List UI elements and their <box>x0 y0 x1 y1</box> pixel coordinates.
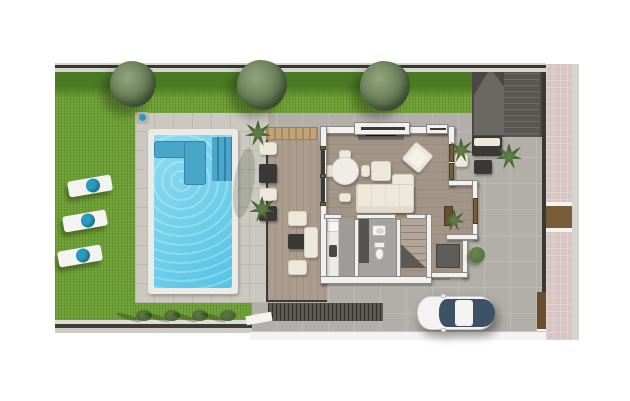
slatted-retaining-wall <box>268 303 383 321</box>
lawn-left <box>55 72 135 320</box>
wall-bottom <box>320 276 432 284</box>
parked-car <box>417 296 495 330</box>
door-post <box>320 146 326 150</box>
tree-canopy <box>360 61 410 111</box>
wall-stairs-entry <box>426 214 432 278</box>
dining-chair <box>339 193 351 202</box>
round-bush <box>469 247 485 263</box>
toilet-bowl <box>375 248 384 260</box>
wall-bath-stairs <box>396 219 401 277</box>
sidewalk-curb <box>572 64 579 340</box>
external-staircase <box>504 68 540 137</box>
patio-coffee-table <box>474 160 492 174</box>
door-post <box>320 202 326 206</box>
terrace-lounge-chair <box>288 260 307 275</box>
patio-cube-seat <box>455 154 468 167</box>
window-bump <box>473 198 478 224</box>
terrace-stone-wall <box>266 127 318 140</box>
door-post <box>320 174 326 178</box>
car-mirror <box>441 328 446 332</box>
shower-vanity-strip <box>359 219 369 263</box>
window-glass <box>361 127 405 130</box>
outdoor-shower <box>136 112 149 124</box>
driveway-curb <box>250 331 546 340</box>
window-right <box>449 163 454 180</box>
pool-entry-steps <box>212 137 232 181</box>
patio-sofa <box>472 136 502 156</box>
window-right <box>449 144 454 162</box>
car-roof <box>455 300 473 326</box>
car-mirror <box>441 294 446 298</box>
window-bay-top <box>354 122 410 135</box>
terrace-table <box>259 164 277 183</box>
shower-head <box>139 114 146 121</box>
pool-corner-bench-leg <box>184 141 206 185</box>
round-dining-table <box>331 157 359 185</box>
pedestrian-gate <box>546 202 572 232</box>
gate-post <box>537 292 546 334</box>
terrace-lounge-chair <box>288 211 307 226</box>
coffee-table <box>371 161 391 181</box>
terrace-coffee-table <box>288 234 305 249</box>
lounger-cushion <box>85 177 101 193</box>
armchair-seat <box>408 148 428 168</box>
wall-entry-bottom <box>428 272 468 278</box>
kitchen-sink <box>329 245 337 257</box>
garden-bush <box>220 310 236 321</box>
wall-interior <box>406 214 426 219</box>
basin-bowl <box>376 228 384 234</box>
kitchen-fridge <box>327 221 339 232</box>
tree-canopy <box>110 61 156 107</box>
sofa-back <box>357 206 413 212</box>
lounger-cushion <box>80 212 96 228</box>
patio-sofa-cushions <box>474 138 500 146</box>
window-glass <box>430 128 446 130</box>
terrace-chair <box>259 142 277 155</box>
lounger-cushion <box>75 247 91 263</box>
entry-door-mat <box>436 244 460 268</box>
l-shaped-sofa <box>356 184 414 213</box>
dining-chair <box>361 165 370 177</box>
washbasin <box>372 225 386 236</box>
window-top-right <box>426 124 448 134</box>
wall-interior <box>356 214 396 219</box>
wall-kitchen-bath <box>354 219 359 277</box>
floor-plan-render <box>0 0 630 401</box>
tree-canopy <box>237 60 287 110</box>
terrace-sofa <box>304 227 318 258</box>
wall-interior <box>324 214 342 219</box>
